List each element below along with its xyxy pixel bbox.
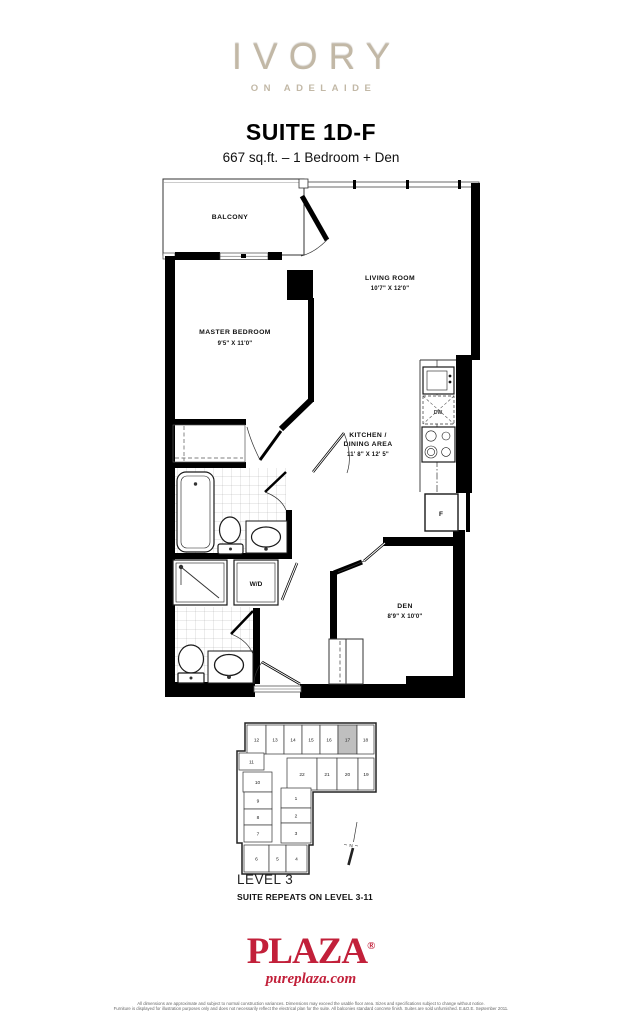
keyplan-unit-number: 14 (290, 738, 296, 744)
den: DEN 8'9" X 10'0" (329, 543, 422, 684)
dishwasher-label: DW (434, 410, 443, 416)
second-toilet-icon (178, 645, 204, 683)
column (287, 270, 313, 300)
suite-subtitle: 667 sq.ft. – 1 Bedroom + Den (0, 150, 622, 165)
bedroom-door-icon (247, 427, 281, 460)
kitchen: KITCHEN / DINING AREA 11' 8" X 12' 5" DW (313, 360, 458, 531)
keyplan-unit-number: 2 (295, 814, 298, 820)
laundry-door-icon (282, 563, 297, 600)
level-label: LEVEL 3 (237, 872, 293, 887)
keyplan-unit-number: 17 (345, 738, 351, 744)
vanity-sink-icon (246, 521, 287, 553)
fridge-label: F (439, 511, 443, 518)
disclaimer: All dimensions are approximate and subje… (86, 1001, 536, 1012)
balcony-door-icon (301, 196, 327, 256)
keyplan-unit-number: 4 (295, 857, 298, 863)
den-label: DEN (397, 603, 413, 610)
keyplan-unit-number: 6 (255, 857, 258, 863)
keyplan-unit-number: 9 (257, 799, 260, 805)
second-bathroom (175, 607, 253, 683)
floorplan-page: IVORY ON ADELAIDE SUITE 1D-F 667 sq.ft. … (0, 0, 622, 1024)
keyplan-unit-number: 18 (363, 738, 369, 744)
dishwasher-icon: DW (423, 396, 454, 424)
den-closet (329, 639, 363, 684)
plaza-logo-text: PLAZA (247, 931, 367, 972)
living-room: LIVING ROOM 10'7" X 12'0" (308, 180, 479, 292)
master-bedroom: MASTER BEDROOM 9'5" X 11'0" (173, 329, 281, 462)
toilet-icon (218, 517, 243, 554)
disclaimer-line-2: Furniture is displayed for illustration … (86, 1006, 536, 1011)
balcony: BALCONY (163, 179, 327, 260)
header: IVORY ON ADELAIDE SUITE 1D-F 667 sq.ft. … (0, 36, 622, 165)
master-bedroom-label: MASTER BEDROOM (199, 329, 271, 336)
plaza-logo: PLAZA® (0, 928, 622, 970)
registered-mark: ® (367, 940, 375, 952)
keyplan-unit-number: 1 (295, 796, 298, 802)
kitchen-dims: 11' 8" X 12' 5" (347, 452, 389, 458)
keyplan-unit-number: 11 (249, 760, 254, 766)
master-bedroom-dims: 9'5" X 11'0" (218, 341, 253, 347)
sink-icon (423, 367, 454, 394)
keyplan-unit-number: 22 (299, 772, 305, 778)
washer-dryer-label: W/D (250, 581, 263, 588)
north-label: N (349, 843, 352, 848)
keyplan-unit-number: 12 (254, 738, 260, 744)
brand-tagline: ON ADELAIDE (0, 83, 622, 94)
plaza-website: pureplaza.com (0, 971, 622, 988)
footer: PLAZA® pureplaza.com (0, 928, 622, 988)
north-arrow-icon: N (344, 822, 358, 865)
living-room-dims: 10'7" X 12'0" (371, 286, 410, 292)
second-sink-icon (208, 651, 253, 683)
keyplan-unit-number: 21 (324, 772, 330, 778)
entry-door-icon (254, 662, 300, 684)
balcony-label: BALCONY (212, 214, 248, 221)
suite-title: SUITE 1D-F (0, 119, 622, 146)
den-dims: 8'9" X 10'0" (388, 614, 423, 620)
kitchen-door-icon (313, 433, 349, 473)
floorplan-drawing: BALCONY LIVING ROOM 10'7" X 12'0" (150, 170, 490, 715)
keyplan-unit-number: 20 (345, 772, 351, 778)
keyplan-unit-number: 19 (363, 772, 369, 778)
cooktop-icon (422, 427, 455, 462)
keyplan-drawing: 12131415161718112221201910987123654 N (230, 712, 425, 880)
living-room-label: LIVING ROOM (365, 275, 415, 282)
keyplan-unit-number: 10 (255, 780, 261, 786)
brand-logo: IVORY (0, 36, 622, 78)
keyplan-unit-number: 8 (257, 815, 260, 821)
keyplan-unit-number: 13 (272, 738, 278, 744)
repeat-note: SUITE REPEATS ON LEVEL 3-11 (237, 892, 373, 902)
main-bathroom (175, 468, 287, 554)
keyplan-unit-number: 15 (308, 738, 314, 744)
living-room-window (308, 182, 479, 187)
kitchen-label-1: KITCHEN / (349, 432, 387, 439)
shower-icon (173, 560, 227, 605)
bedroom-closet (173, 425, 245, 462)
bathtub-icon (177, 472, 214, 552)
keyplan-unit-number: 3 (295, 831, 298, 837)
kitchen-label-2: DINING AREA (343, 441, 392, 448)
keyplan-unit-number: 5 (276, 857, 279, 863)
fridge-icon: F (425, 494, 458, 531)
keyplan-unit-number: 16 (326, 738, 332, 744)
entry (254, 662, 301, 692)
keyplan-unit-number: 7 (257, 832, 260, 838)
washer-dryer-icon: W/D (234, 560, 278, 605)
